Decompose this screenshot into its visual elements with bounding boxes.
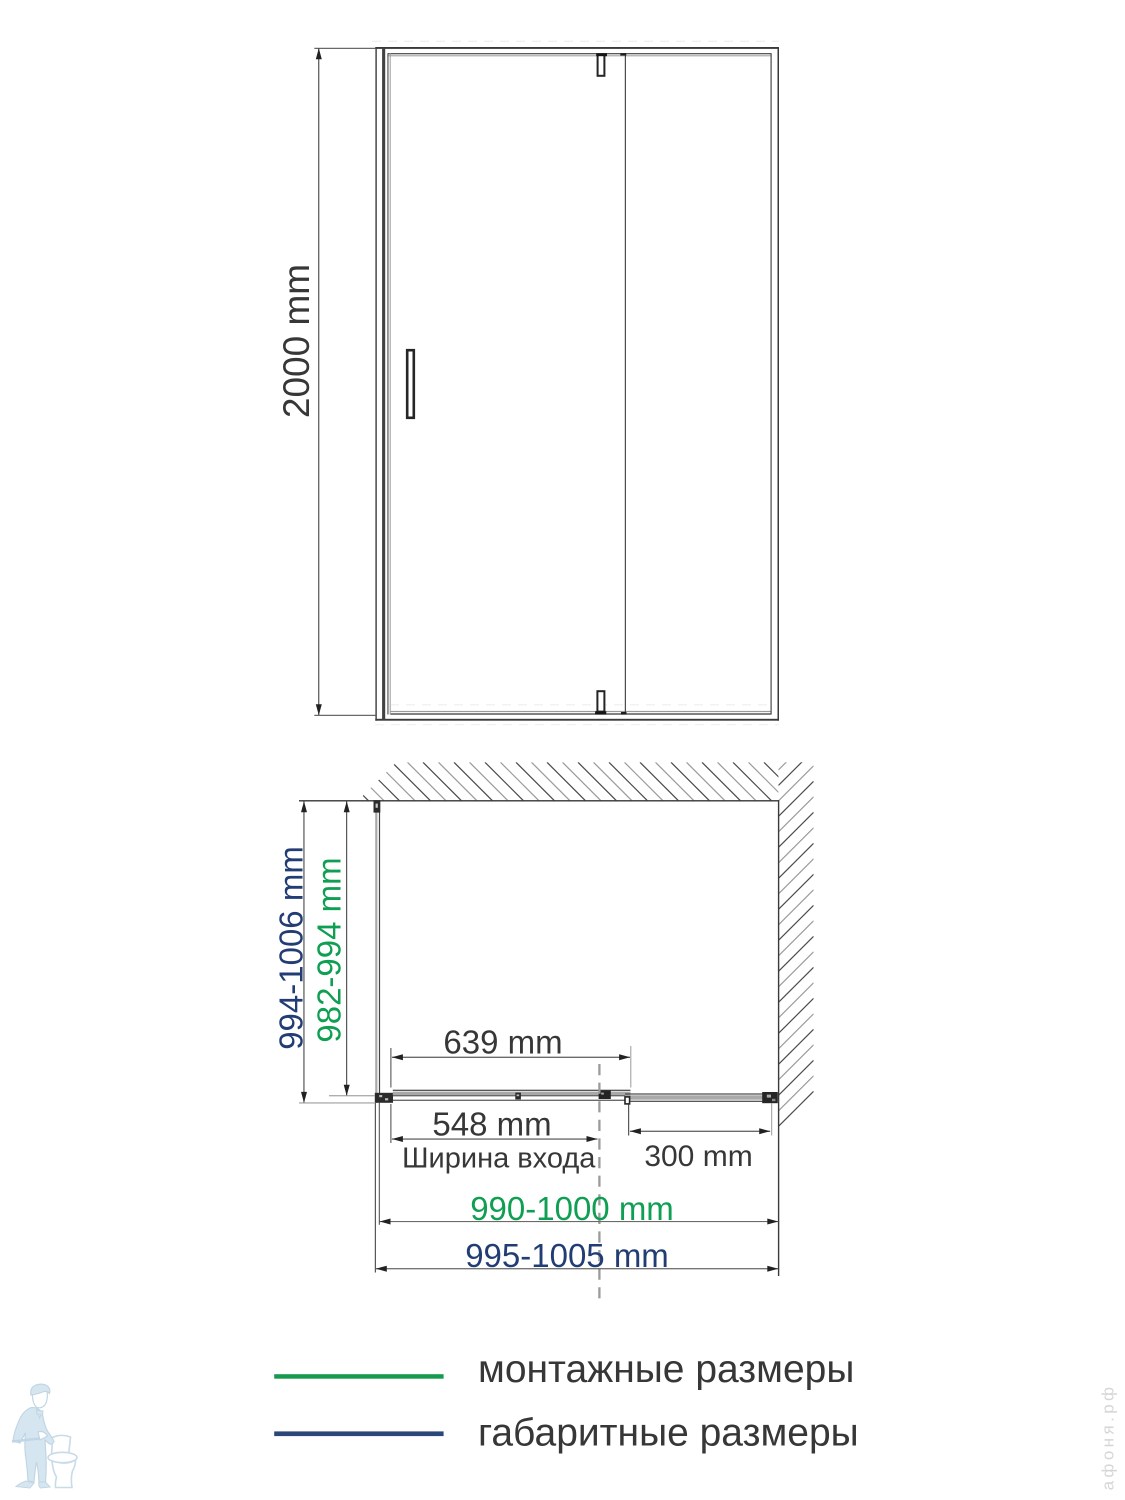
svg-text:982-994 mm: 982-994 mm: [310, 857, 347, 1042]
svg-text:2000 mm: 2000 mm: [276, 264, 317, 418]
svg-text:афоня.рф: афоня.рф: [1099, 1384, 1118, 1491]
svg-text:994-1006 mm: 994-1006 mm: [273, 846, 310, 1050]
svg-text:Ширина входа: Ширина входа: [402, 1143, 596, 1175]
svg-text:548 mm: 548 mm: [432, 1106, 551, 1143]
svg-text:995-1005 mm: 995-1005 mm: [465, 1237, 669, 1274]
svg-text:990-1000 mm: 990-1000 mm: [470, 1190, 674, 1227]
svg-text:габаритные размеры: габаритные размеры: [478, 1412, 859, 1455]
svg-text:монтажные размеры: монтажные размеры: [478, 1348, 854, 1391]
svg-text:639 mm: 639 mm: [443, 1024, 562, 1061]
svg-text:300 mm: 300 mm: [644, 1140, 752, 1173]
